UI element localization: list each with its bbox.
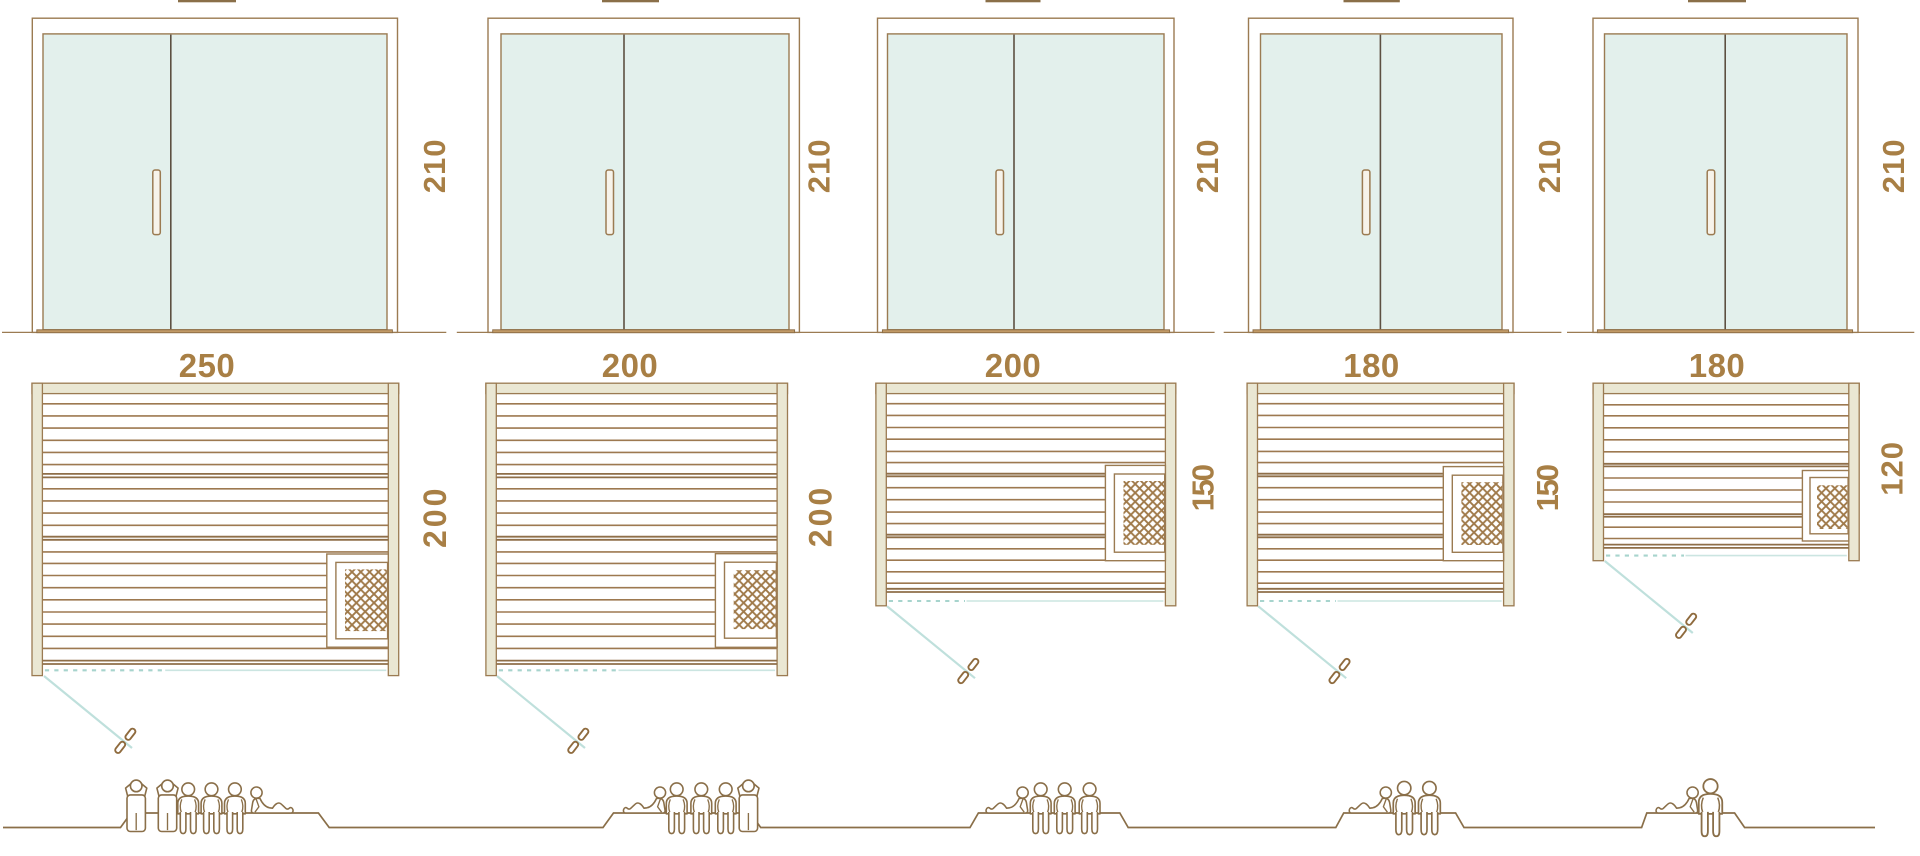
svg-text:180: 180 (1689, 347, 1746, 384)
svg-text:250: 250 (179, 347, 236, 384)
svg-text:200: 200 (985, 347, 1042, 384)
svg-text:180: 180 (1343, 347, 1400, 384)
svg-text:200: 200 (602, 347, 659, 384)
svg-text:210: 210 (802, 139, 837, 194)
svg-text:210: 210 (1532, 139, 1567, 194)
svg-text:150: 150 (1186, 465, 1221, 511)
svg-text:150: 150 (1530, 465, 1565, 511)
svg-text:210: 210 (417, 139, 452, 194)
svg-text:120: 120 (1874, 441, 1909, 496)
svg-text:200: 200 (417, 486, 453, 548)
svg-text:200: 200 (802, 485, 838, 547)
svg-text:210: 210 (1876, 139, 1911, 194)
svg-text:210: 210 (1190, 139, 1225, 194)
